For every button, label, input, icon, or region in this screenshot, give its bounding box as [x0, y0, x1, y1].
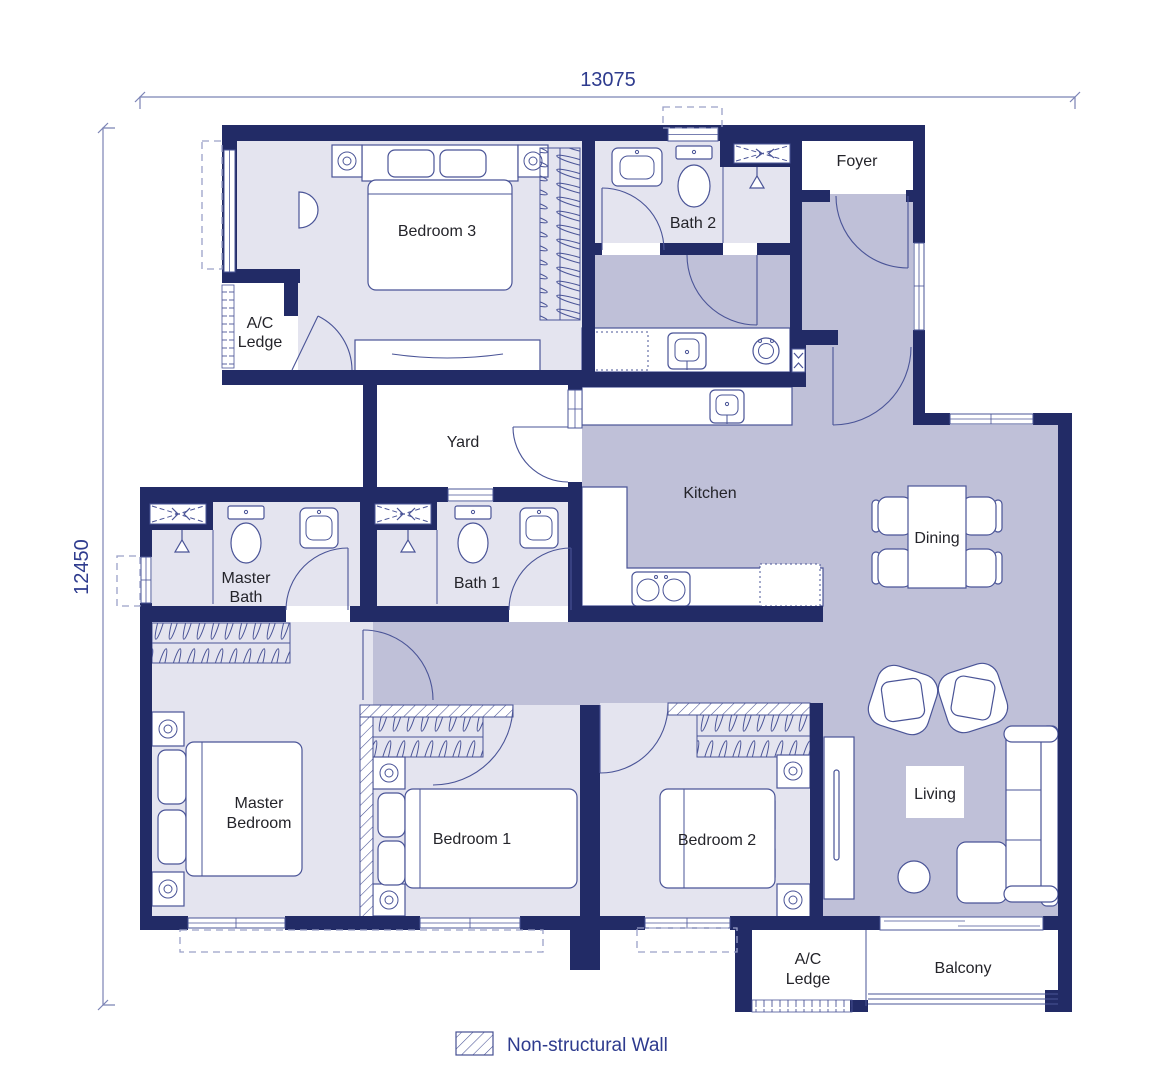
dresser [355, 340, 540, 372]
room-label-master-bedroom-2: Bedroom [227, 815, 292, 832]
room-label-yard: Yard [447, 434, 480, 451]
louver [752, 1000, 852, 1012]
nightstand [373, 757, 405, 789]
dimension-left: 12450 [71, 539, 93, 595]
floor-plan-drawing: 13075 12450 Bedroom 3 Bath 2 Foyer A/C L… [0, 0, 1150, 1080]
nightstand [373, 884, 405, 916]
dimension-top: 13075 [580, 69, 636, 91]
pillow [158, 810, 186, 864]
legend-hatch-swatch [456, 1032, 493, 1055]
room-label-master-bath-2: Bath [230, 589, 263, 606]
legend-label: Non-structural Wall [507, 1035, 668, 1056]
room-label-master-bedroom-1: Master [235, 795, 285, 812]
room-label-master-bath-1: Master [222, 570, 272, 587]
nightstand [152, 872, 184, 906]
vent-grille-icon [734, 144, 790, 163]
room-label-balcony: Balcony [935, 960, 992, 977]
nightstand [332, 145, 362, 177]
sofa-arm [1004, 726, 1058, 742]
pillow [378, 793, 405, 837]
room-label-living: Living [914, 786, 956, 803]
sofa-back [1041, 726, 1058, 906]
room-label-ac-ledge-bottom-1: A/C [795, 951, 822, 968]
sofa-chaise [957, 842, 1007, 903]
pillow [378, 841, 405, 885]
room-label-bath1: Bath 1 [454, 575, 500, 592]
sofa-seat [1006, 740, 1042, 890]
side-table [898, 861, 930, 893]
nightstand [777, 755, 810, 788]
fridge-space [760, 564, 820, 606]
wet-kitchen-counter [582, 328, 790, 372]
stove-icon [632, 572, 690, 606]
chair [878, 549, 912, 587]
room-label-foyer: Foyer [837, 153, 879, 170]
toilet-icon [455, 506, 491, 519]
chair [962, 549, 996, 587]
room-label-ac-ledge-top-1: A/C [247, 315, 274, 332]
pillow [388, 150, 434, 177]
room-label-ac-ledge-bottom-2: Ledge [786, 971, 831, 988]
burner-icon [753, 338, 779, 364]
nightstand [152, 712, 184, 746]
floor-plan-page: 13075 12450 Bedroom 3 Bath 2 Foyer A/C L… [0, 0, 1150, 1080]
nightstand [777, 884, 810, 917]
chair [962, 497, 996, 535]
sofa-arm [1004, 886, 1058, 902]
tv-icon [834, 770, 839, 860]
appliance-space [586, 332, 648, 370]
chair [878, 497, 912, 535]
room-label-bedroom3: Bedroom 3 [398, 223, 476, 240]
vent-grille-icon [375, 504, 431, 524]
vent-grille-icon [150, 504, 206, 524]
room-label-kitchen: Kitchen [683, 485, 736, 502]
room-label-ac-ledge-top-2: Ledge [238, 334, 283, 351]
sliding-door [880, 917, 1043, 930]
vent-grille-icon [792, 349, 805, 372]
toilet-icon [676, 146, 712, 159]
pillow [158, 750, 186, 804]
pillow [440, 150, 486, 177]
legend: Non-structural Wall [456, 1032, 668, 1056]
room-label-bedroom1: Bedroom 1 [433, 831, 511, 848]
room-label-bedroom2: Bedroom 2 [678, 832, 756, 849]
louver [222, 285, 234, 368]
toilet-icon [228, 506, 264, 519]
room-label-dining: Dining [914, 530, 959, 547]
room-label-bath2: Bath 2 [670, 215, 716, 232]
